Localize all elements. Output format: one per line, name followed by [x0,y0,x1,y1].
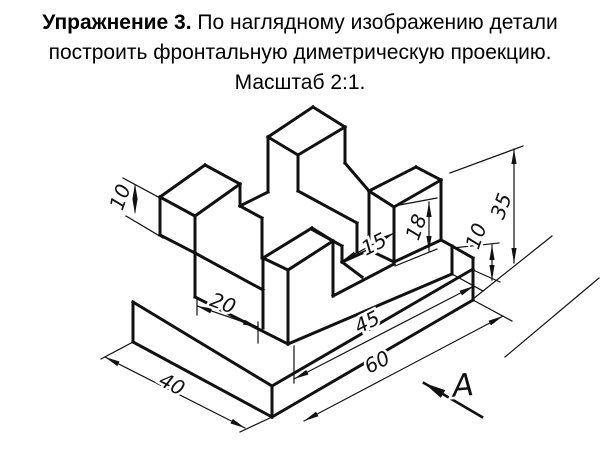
part-edge [268,137,298,155]
part-edge [288,241,333,270]
part-edge [298,127,345,155]
dimension-line [101,342,133,359]
arrowhead-icon [489,245,494,260]
dimension-line [450,146,523,173]
dimension-line [473,270,500,282]
arrowhead-icon [132,199,137,214]
dimension-line [240,417,272,432]
dimension-line [126,216,163,238]
title-rest: По наглядному изображению детали [192,11,558,34]
part-edge [342,262,362,277]
part-edge [298,191,357,223]
arrowhead-icon [511,248,516,263]
part-edge [369,191,394,207]
arrowhead-icon [511,149,516,164]
exercise-title: Упражнение 3. По наглядному изображению … [0,8,600,98]
dimension-label: 10 [104,181,135,213]
part-edge [160,165,205,197]
title-bold: Упражнение 3. [42,11,191,34]
dimension-label: А [449,367,475,405]
part-edge [441,240,452,246]
part-edge [263,258,288,270]
part-edge [369,167,416,191]
arrowhead-icon [303,412,319,424]
part-edge [160,235,195,253]
part-edge [160,197,195,216]
title-line-3: Масштаб 2:1. [0,68,600,98]
part-edge [268,107,313,137]
part-edge [133,302,272,386]
part-edge [133,342,272,417]
part-edge [205,165,240,184]
dimension-label: 15 [357,228,391,261]
part-edge [195,184,240,216]
dimension-line [473,300,512,321]
part-edge [345,163,369,191]
part-edge [394,180,441,207]
dimension-line [304,316,503,421]
title-line-1: Упражнение 3. По наглядному изображению … [0,8,600,38]
part-edge [263,228,312,258]
part-edge [195,253,263,290]
part-edge [240,206,262,218]
dimension-line [505,278,599,357]
arrowhead-icon [230,419,246,430]
dimension-label: 45 [350,306,384,339]
dimension-label: 40 [155,368,189,401]
title-line-2: построить фронтальную диметрическую прое… [0,38,600,68]
arrowhead-icon [426,202,431,217]
part-edge [416,167,441,180]
part-edge [394,240,441,262]
part-edge [240,192,268,206]
dimension-label: 20 [207,287,239,318]
arrowhead-icon [422,379,446,398]
dimension-label: 35 [485,190,516,222]
part-edge [313,107,345,127]
part-edge [333,264,394,296]
